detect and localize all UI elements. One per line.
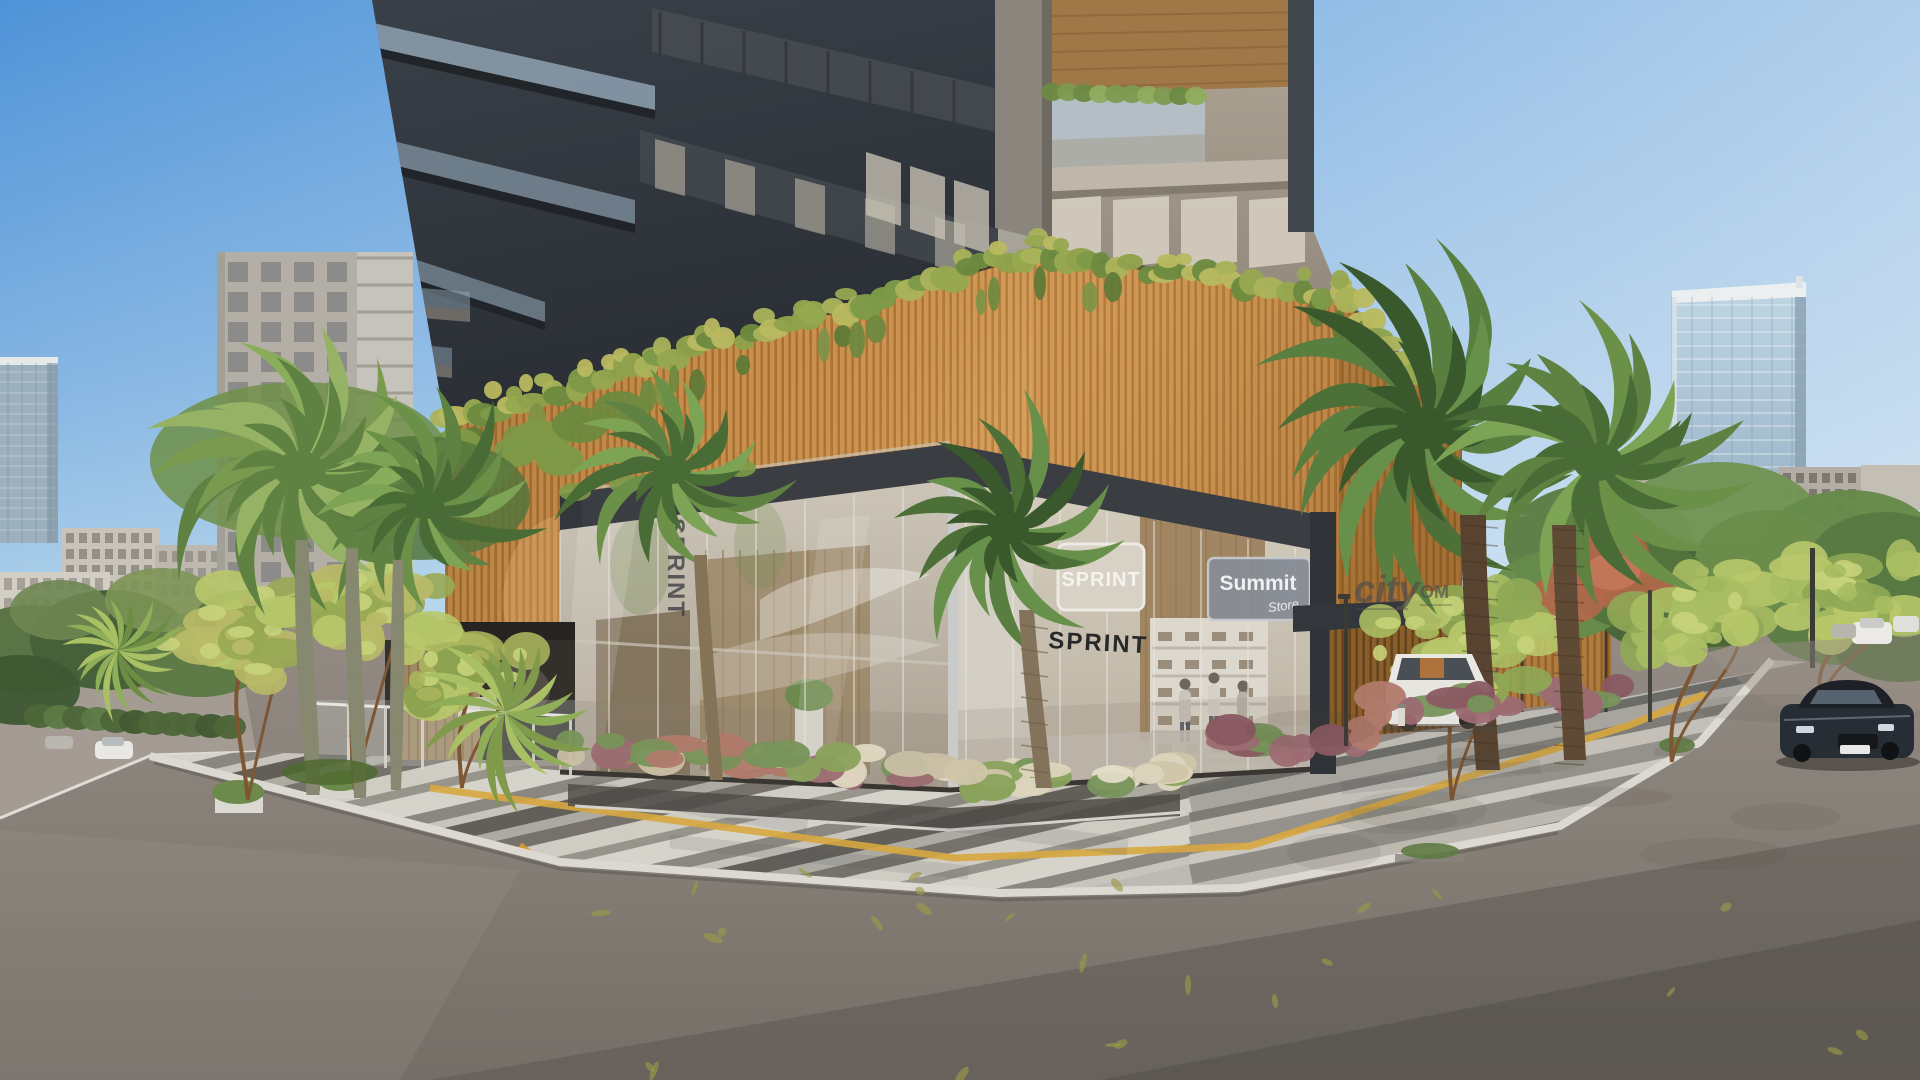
svg-text:OM: OM: [1420, 582, 1449, 602]
svg-text:SPRINT: SPRINT: [1048, 627, 1149, 659]
svg-text:city: city: [1354, 569, 1421, 611]
svg-text:Summit: Summit: [1219, 572, 1296, 595]
svg-text:SPRINT: SPRINT: [1061, 569, 1140, 591]
